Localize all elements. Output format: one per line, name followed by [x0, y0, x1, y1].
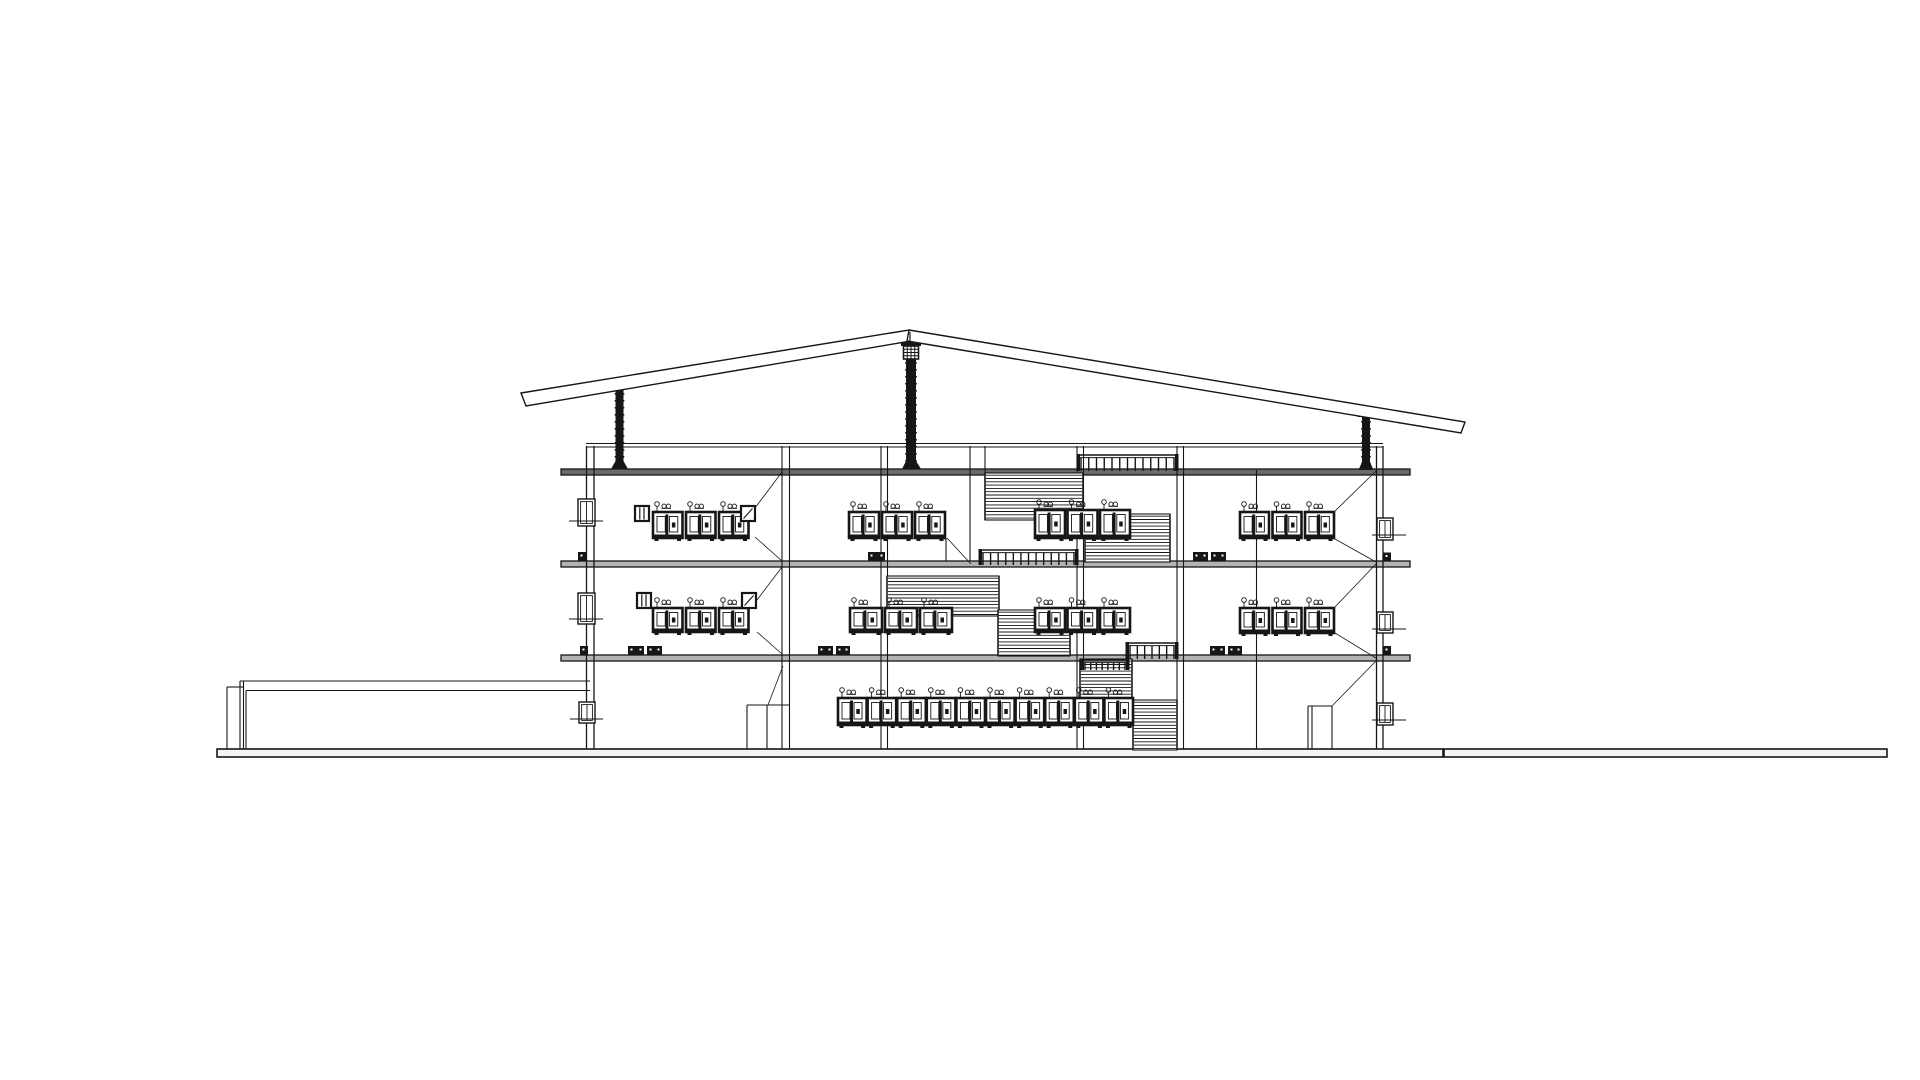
ground-line — [217, 749, 1887, 757]
roof-planes — [521, 330, 1465, 433]
left-platform — [227, 681, 590, 749]
architectural-section-sheet — [0, 0, 1920, 1080]
building-section-drawing — [0, 0, 1920, 1080]
